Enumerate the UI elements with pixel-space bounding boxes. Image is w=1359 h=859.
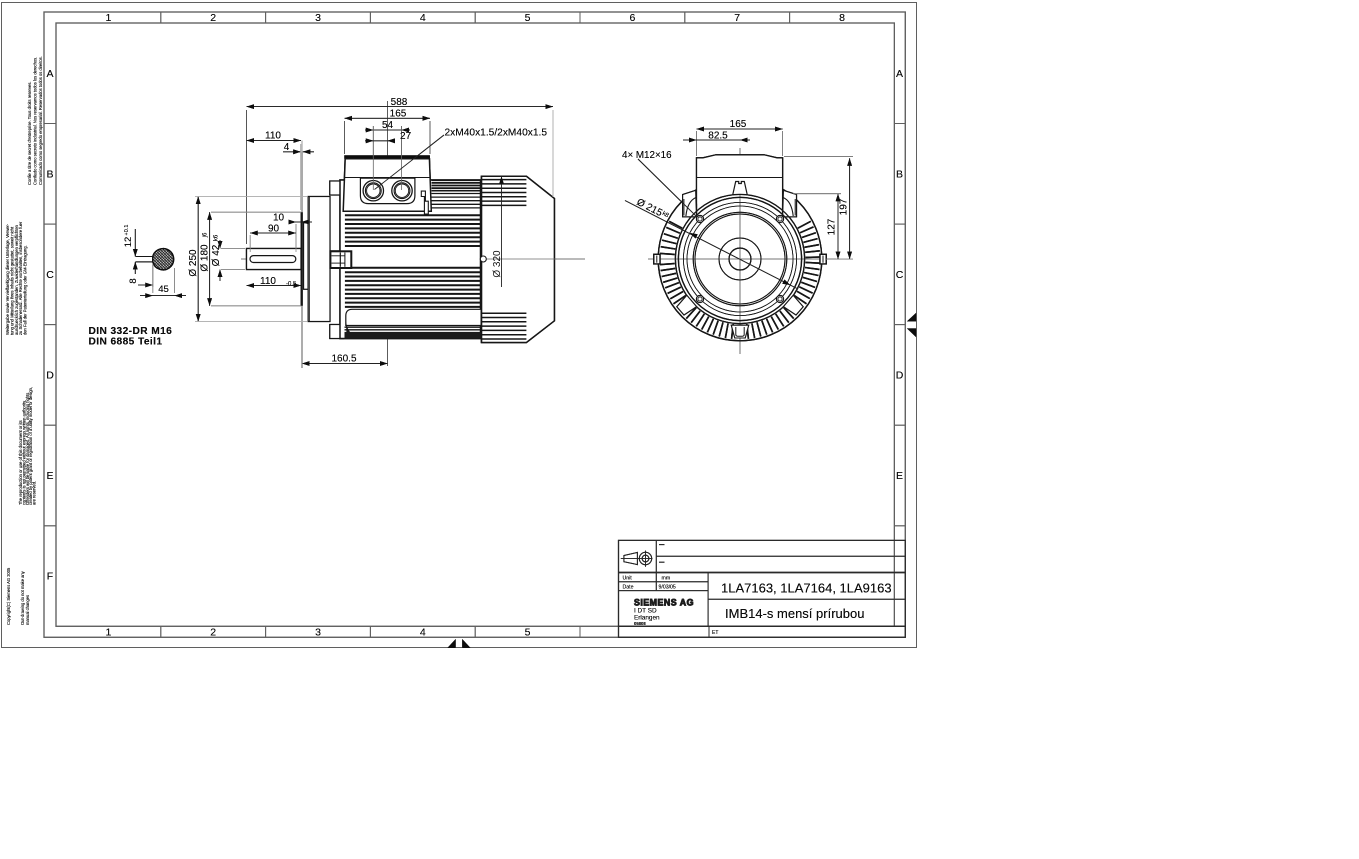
- svg-text:DIN 6885 Teil1: DIN 6885 Teil1: [89, 337, 163, 348]
- svg-text:B: B: [896, 168, 903, 180]
- svg-text:2xM40x1.5/2xM40x1.5: 2xM40x1.5/2xM40x1.5: [445, 127, 548, 138]
- svg-text:Ø 42: Ø 42: [211, 244, 222, 266]
- svg-text:k6: k6: [214, 234, 220, 241]
- svg-text:Copyright(C) Siemens AG 2005: Copyright(C) Siemens AG 2005: [6, 567, 11, 625]
- svg-text:E: E: [896, 470, 903, 482]
- svg-text:110: 110: [260, 276, 276, 287]
- svg-text:90: 90: [268, 223, 280, 234]
- svg-text:D: D: [46, 369, 54, 381]
- svg-text:A: A: [46, 68, 53, 80]
- svg-text:C: C: [896, 269, 904, 281]
- svg-text:3: 3: [315, 12, 321, 24]
- svg-text:3: 3: [315, 627, 321, 639]
- svg-text:manual changes: manual changes: [25, 595, 30, 625]
- svg-text:mm: mm: [662, 575, 671, 581]
- svg-text:05808: 05808: [634, 621, 646, 626]
- svg-text:1LA7163, 1LA7164, 1LA9163: 1LA7163, 1LA7164, 1LA9163: [721, 581, 892, 596]
- svg-text:8: 8: [128, 278, 139, 283]
- svg-text:DIN 332-DR M16: DIN 332-DR M16: [89, 326, 173, 337]
- svg-text:10: 10: [273, 212, 285, 223]
- svg-text:127: 127: [827, 218, 838, 235]
- svg-text:588: 588: [391, 97, 408, 108]
- svg-text:12: 12: [123, 237, 134, 248]
- svg-text:8: 8: [839, 12, 845, 24]
- svg-text:+0.1: +0.1: [124, 225, 130, 236]
- svg-text:1: 1: [105, 627, 111, 639]
- svg-text:45: 45: [158, 284, 169, 295]
- svg-text:1: 1: [105, 12, 111, 24]
- svg-text:Date: Date: [623, 585, 634, 591]
- svg-text:B: B: [46, 168, 53, 180]
- svg-text:Unit: Unit: [623, 575, 633, 581]
- svg-text:Ø 180: Ø 180: [200, 244, 211, 272]
- svg-text:54: 54: [382, 120, 394, 131]
- svg-text:27: 27: [400, 131, 412, 142]
- svg-text:Comunicado como segredo empres: Comunicado como segredo empresarial. Res…: [38, 56, 43, 185]
- svg-text:2: 2: [210, 627, 216, 639]
- svg-text:C: C: [46, 269, 54, 281]
- svg-text:j6: j6: [203, 232, 209, 238]
- svg-text:ET: ET: [712, 630, 718, 636]
- svg-text:den Fall der Patenterteilung o: den Fall der Patenterteilung oder GM-Ein…: [23, 245, 28, 335]
- svg-text:4: 4: [284, 142, 290, 153]
- svg-text:are reserved.: are reserved.: [32, 481, 37, 505]
- svg-text:6: 6: [629, 12, 635, 24]
- svg-text:2: 2: [210, 12, 216, 24]
- svg-text:4× M12×16: 4× M12×16: [622, 150, 672, 161]
- svg-text:82.5: 82.5: [708, 131, 728, 142]
- svg-text:I DT SD: I DT SD: [634, 608, 657, 615]
- svg-text:5: 5: [525, 12, 531, 24]
- svg-text:160.5: 160.5: [331, 354, 356, 365]
- svg-text:A: A: [896, 68, 903, 80]
- svg-text:4: 4: [420, 627, 426, 639]
- svg-text:IMB14-s mensí prírubou: IMB14-s mensí prírubou: [725, 606, 864, 621]
- svg-text:Confie a titre de secret d'ent: Confie a titre de secret d'entreprise. T…: [27, 81, 32, 185]
- svg-text:Ø 320: Ø 320: [492, 250, 503, 278]
- svg-text:E: E: [46, 470, 53, 482]
- svg-text:SIEMENS AG: SIEMENS AG: [634, 598, 694, 608]
- svg-text:7: 7: [734, 12, 740, 24]
- svg-text:F: F: [47, 571, 53, 583]
- svg-text:-0.5: -0.5: [286, 281, 297, 287]
- svg-text:5: 5: [525, 627, 531, 639]
- svg-text:9/03/05: 9/03/05: [659, 585, 676, 591]
- svg-text:D: D: [896, 369, 904, 381]
- svg-text:4: 4: [420, 12, 426, 24]
- svg-text:Ø 250: Ø 250: [188, 249, 199, 277]
- svg-text:110: 110: [265, 131, 281, 142]
- svg-text:165: 165: [730, 119, 747, 130]
- svg-text:165: 165: [390, 109, 407, 120]
- svg-text:Confiado como secreto industri: Confiado como secreto industrial. Nos re…: [32, 57, 37, 185]
